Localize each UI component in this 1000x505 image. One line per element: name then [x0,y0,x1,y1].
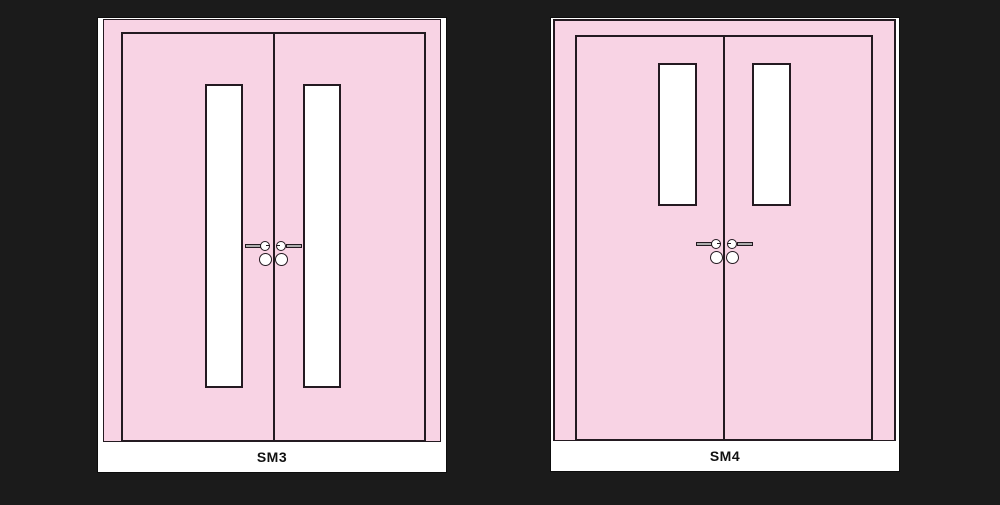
left-door-knob [710,251,723,264]
left-door-knob [259,253,272,266]
left-lever-handle [245,244,261,248]
door-elevation-sm3: SM3 [97,17,447,473]
vision-panel-right [752,63,791,206]
left-lever-rose [711,239,721,249]
door-hardware [689,238,759,274]
meeting-stile-line [273,34,275,440]
figure-label: SM4 [710,448,740,464]
door-elevation-sm4: SM4 [550,17,900,472]
vision-panel-left [205,84,243,388]
right-lever-rose [727,239,737,249]
right-lever-handle [737,242,753,246]
right-door-knob [726,251,739,264]
left-lever-rose [260,241,270,251]
right-door-knob [275,253,288,266]
drawing-canvas: SM3 SM4 [0,0,1000,505]
figure-label-band: SM4 [551,441,899,471]
left-lever-handle [696,242,712,246]
figure-label-band: SM3 [98,442,446,472]
door-hardware [238,240,308,276]
right-lever-rose [276,241,286,251]
figure-label: SM3 [257,449,287,465]
door-leaves [121,32,426,442]
vision-panel-left [658,63,697,206]
vision-panel-right [303,84,341,388]
right-lever-handle [286,244,302,248]
